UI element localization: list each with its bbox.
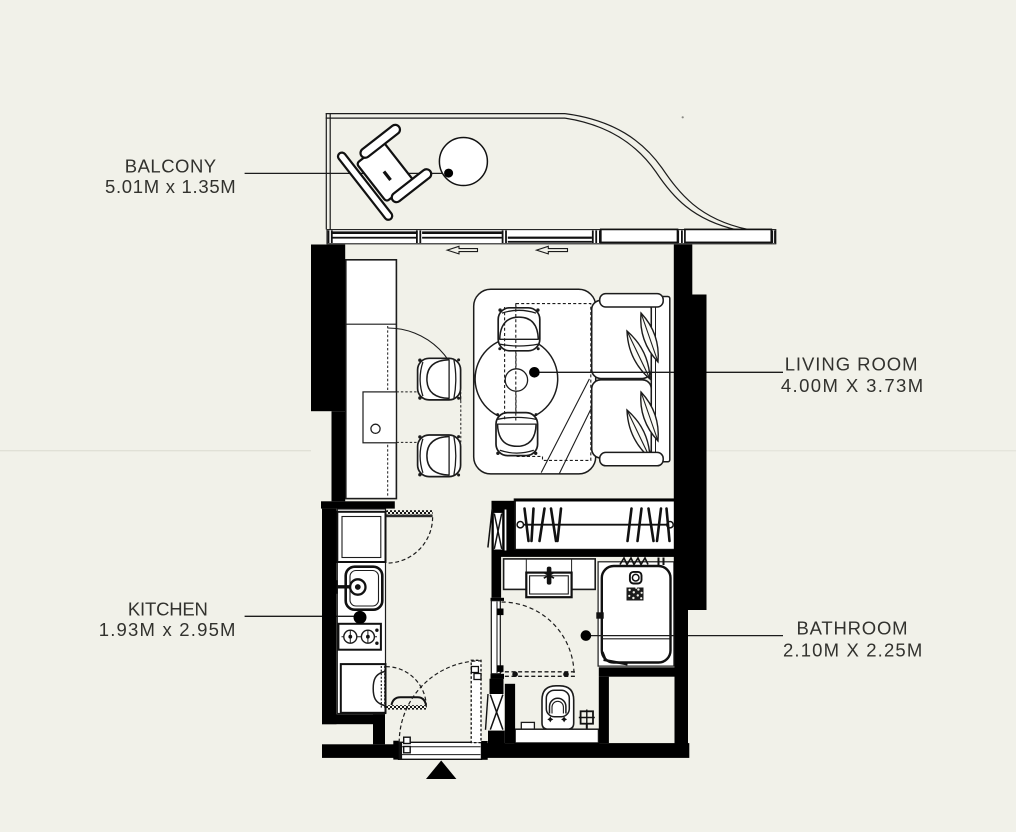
svg-text:1.93M x 2.95M: 1.93M x 2.95M	[99, 619, 237, 640]
svg-text:BATHROOM: BATHROOM	[796, 618, 908, 639]
svg-text:BALCONY: BALCONY	[125, 155, 217, 176]
svg-text:2.10M X 2.25M: 2.10M X 2.25M	[783, 639, 923, 660]
svg-text:KITCHEN: KITCHEN	[128, 598, 208, 619]
svg-text:LIVING ROOM: LIVING ROOM	[785, 354, 919, 375]
svg-text:4.00M X 3.73M: 4.00M X 3.73M	[781, 375, 925, 396]
svg-text:5.01M x 1.35M: 5.01M x 1.35M	[105, 176, 236, 197]
